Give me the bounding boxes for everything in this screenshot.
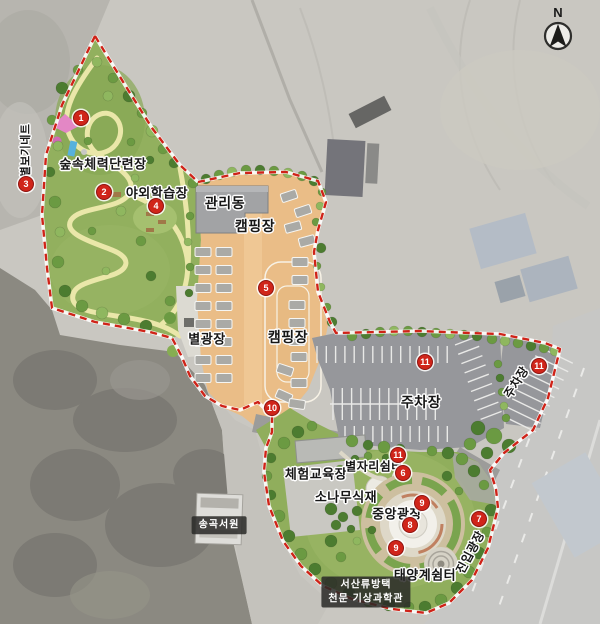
map-canvas: N [0,0,600,624]
site-plan-map: N 숲속체력단련장야외학습장별보기네트관리동캠핑장캠핑장별광장주차장주차장체험교… [0,0,600,624]
songgok-seowon-building [195,493,243,545]
solar-system-circle [424,547,458,581]
education-yard [283,460,360,537]
outdoor-learning-clearing [133,202,177,234]
compass-n-label: N [553,5,562,20]
